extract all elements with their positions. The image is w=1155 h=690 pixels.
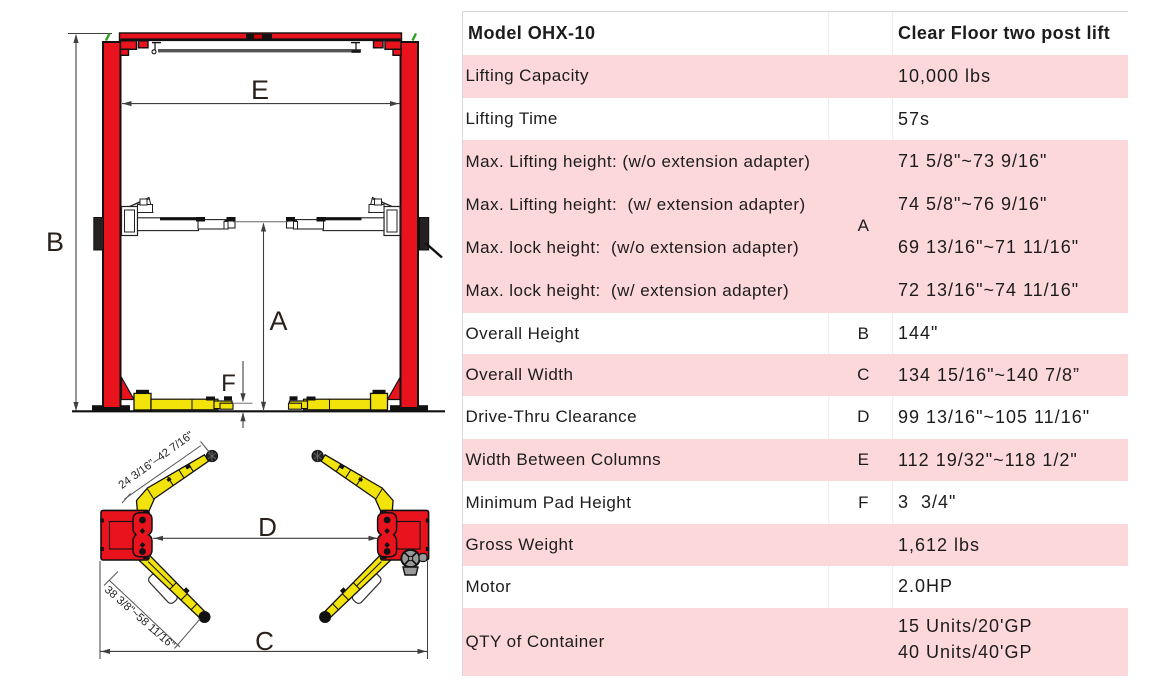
svg-text:E: E: [251, 75, 269, 105]
svg-text:D: D: [258, 512, 277, 542]
svg-text:F: F: [221, 370, 236, 397]
svg-text:A: A: [269, 306, 287, 336]
svg-text:B: B: [46, 227, 64, 257]
svg-text:C: C: [255, 626, 274, 656]
